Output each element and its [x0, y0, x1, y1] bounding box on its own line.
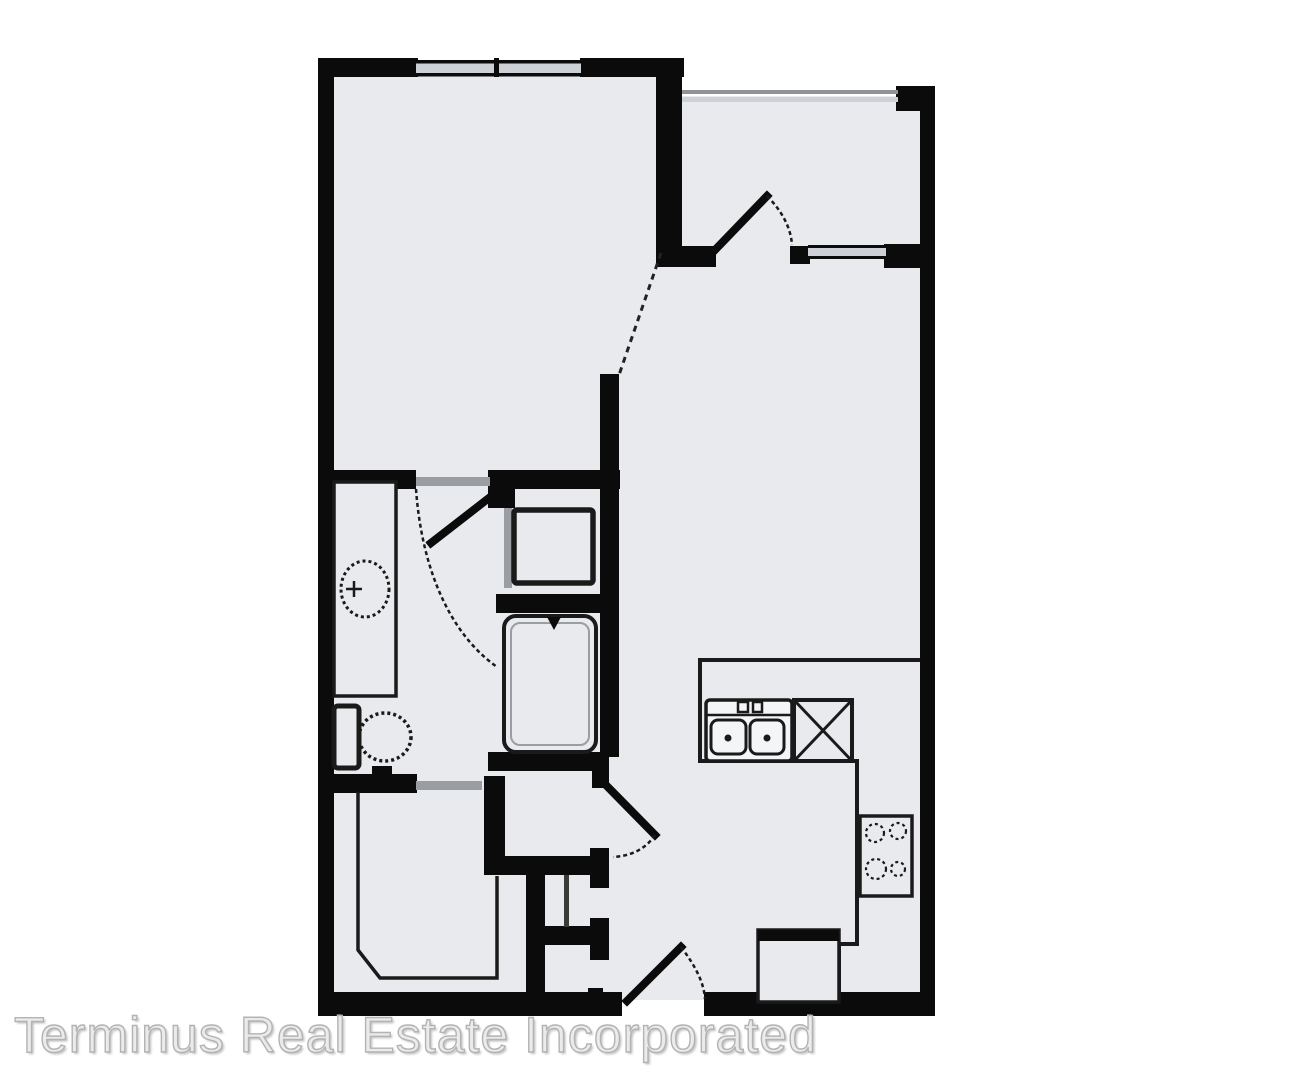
- wall-left: [318, 58, 334, 1012]
- threshold-bath-closet: [416, 781, 482, 790]
- threshold-bedroom-bath: [416, 477, 490, 486]
- wall-hall-b-stub: [590, 918, 609, 960]
- floor-plan: [0, 0, 1295, 1080]
- wall-balcony-bottom: [656, 246, 716, 267]
- bathtub-icon: [504, 616, 596, 752]
- wall-washer-tub-divider: [496, 594, 619, 613]
- floor-areas: [324, 64, 928, 1002]
- coat-closet-door-panel: [564, 875, 569, 927]
- wall-bath-living-lower: [600, 613, 619, 757]
- vanity-counter-icon: [334, 482, 396, 696]
- threshold-washer-niche: [504, 508, 512, 588]
- wall-tub-bottom: [488, 752, 608, 771]
- refrigerator-icon: [758, 930, 839, 1002]
- wall-hall-a-stub: [590, 848, 609, 888]
- wall-right: [920, 86, 935, 1012]
- watermark-text: Terminus Real Estate Incorporated: [14, 1006, 1284, 1064]
- wall-balcony-bottom-corner: [884, 244, 934, 268]
- washer-icon: [514, 510, 593, 583]
- balcony-floor: [660, 96, 928, 266]
- wall-bath-living-upper: [600, 374, 619, 600]
- balcony-window-icon: [808, 245, 886, 259]
- stove-icon: [860, 816, 912, 896]
- wall-balcony-stub: [790, 246, 810, 264]
- wall-toilet-bottom: [332, 774, 417, 793]
- wall-entry-doorstop: [588, 988, 603, 998]
- bedroom-window-icon: [416, 58, 581, 77]
- wall-bedroom-right: [656, 58, 682, 266]
- wall-top-left: [318, 58, 418, 77]
- kitchen-sink-icon: [706, 700, 792, 761]
- wall-doorstop-bump: [372, 766, 392, 776]
